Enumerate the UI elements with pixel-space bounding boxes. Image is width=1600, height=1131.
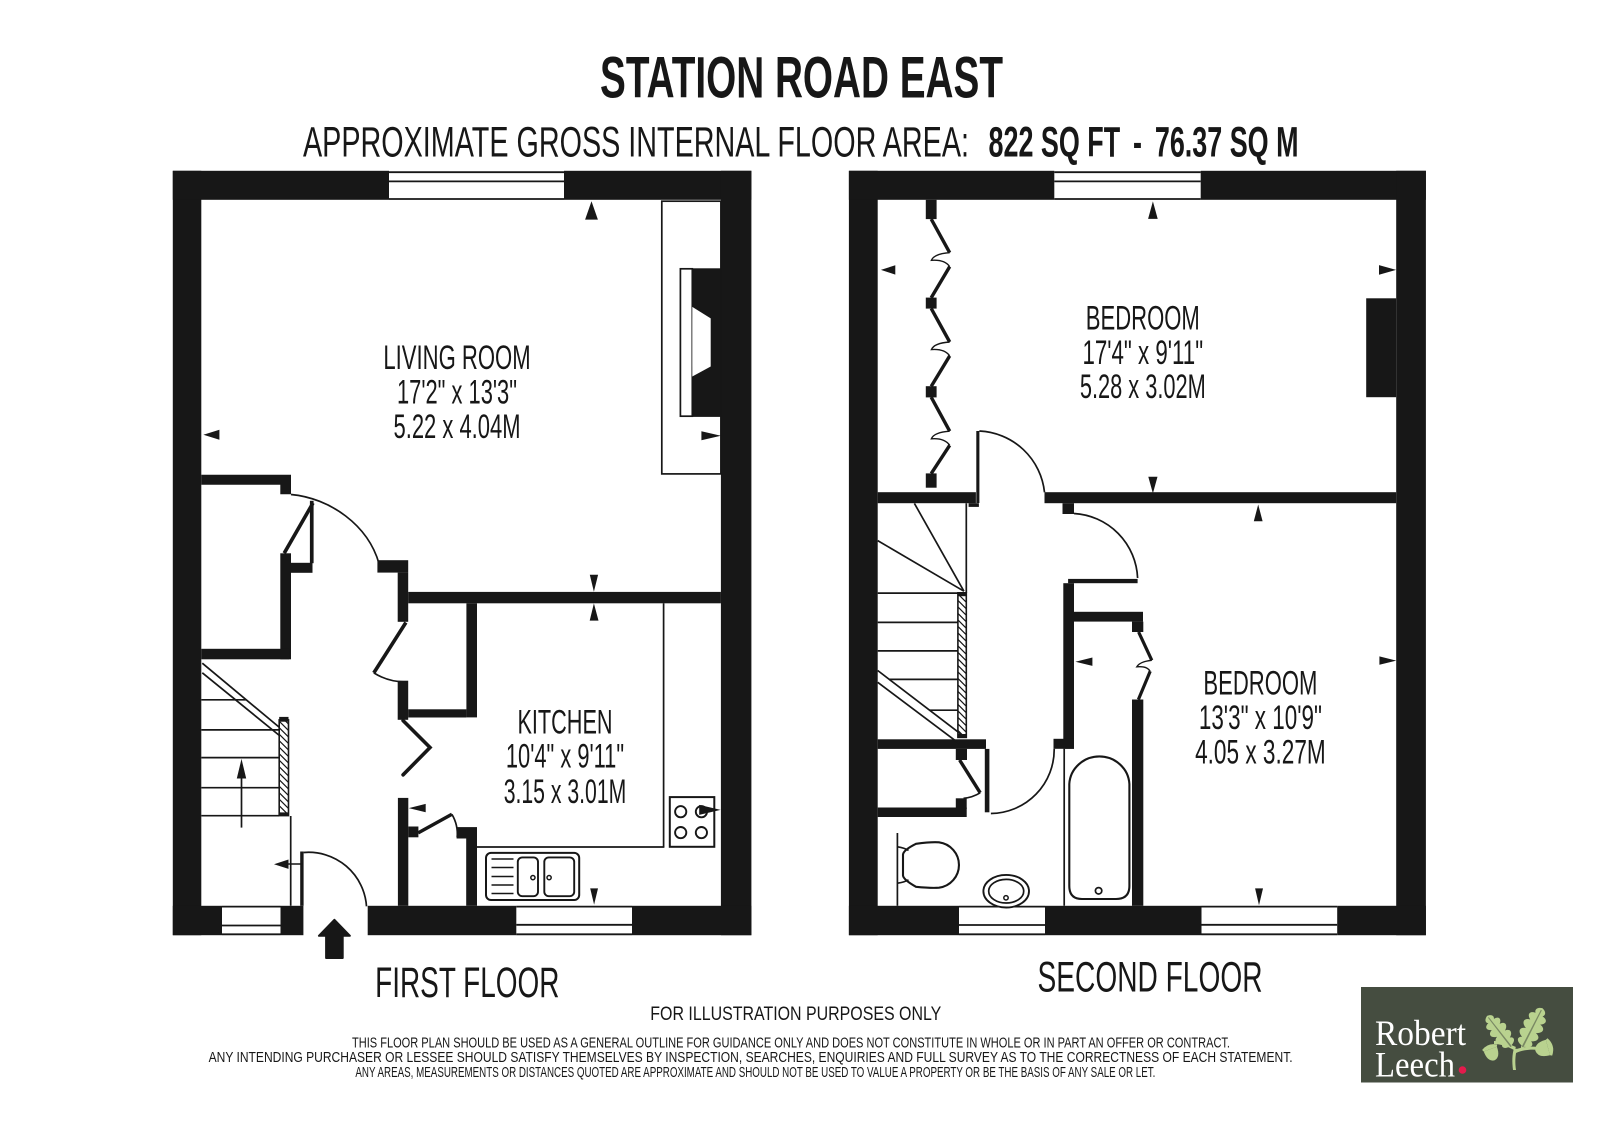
svg-text:LIVING ROOM: LIVING ROOM [383,339,530,377]
svg-text:5.28 x 3.02M: 5.28 x 3.02M [1080,368,1206,406]
svg-text:FOR ILLUSTRATION PURPOSES ONLY: FOR ILLUSTRATION PURPOSES ONLY [650,1003,941,1025]
svg-text:17'4" x 9'11": 17'4" x 9'11" [1082,334,1203,372]
svg-text:BEDROOM: BEDROOM [1203,664,1317,702]
svg-text:KITCHEN: KITCHEN [517,703,612,741]
svg-text:SECOND FLOOR: SECOND FLOOR [1038,954,1263,1002]
svg-text:10'4" x 9'11": 10'4" x 9'11" [506,737,624,775]
svg-text:APPROXIMATE GROSS INTERNAL FLO: APPROXIMATE GROSS INTERNAL FLOOR AREA: [303,119,969,166]
svg-text:13'3" x 10'9": 13'3" x 10'9" [1199,699,1322,737]
svg-text:822 SQ FT - 76.37 SQ M: 822 SQ FT - 76.37 SQ M [989,119,1299,166]
svg-text:FIRST FLOOR: FIRST FLOOR [375,959,559,1007]
svg-text:STATION ROAD EAST: STATION ROAD EAST [600,46,1003,111]
svg-text:4.05 x 3.27M: 4.05 x 3.27M [1195,733,1326,771]
svg-text:ANY INTENDING PURCHASER OR LES: ANY INTENDING PURCHASER OR LESSEE SHOULD… [209,1050,1293,1066]
svg-text:Leech: Leech [1375,1045,1455,1085]
svg-text:3.15 x 3.01M: 3.15 x 3.01M [504,773,627,811]
svg-text:BEDROOM: BEDROOM [1086,300,1200,338]
svg-text:ANY AREAS, MEASUREMENTS OR DIS: ANY AREAS, MEASUREMENTS OR DISTANCES QUO… [355,1065,1155,1081]
svg-text:5.22 x 4.04M: 5.22 x 4.04M [394,408,521,446]
svg-text:THIS FLOOR PLAN SHOULD BE USED: THIS FLOOR PLAN SHOULD BE USED AS A GENE… [352,1036,1230,1052]
svg-text:17'2" x 13'3": 17'2" x 13'3" [397,374,517,412]
